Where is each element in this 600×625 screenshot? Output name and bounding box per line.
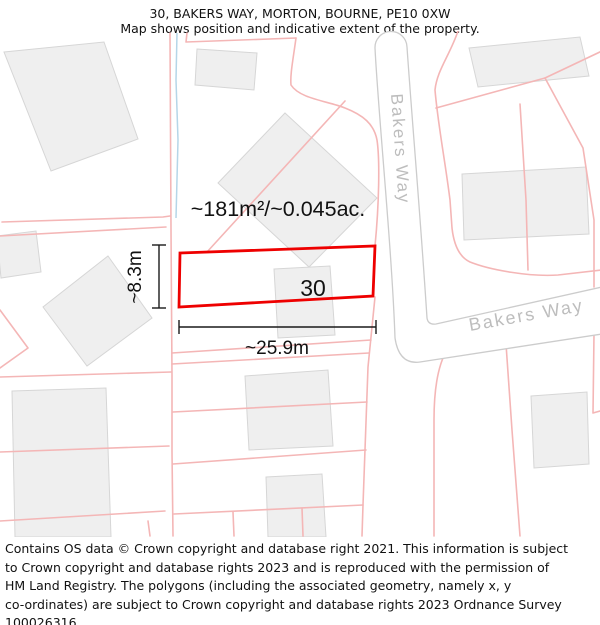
stream-line	[176, 33, 178, 218]
copyright-line: co-ordinates) are subject to Crown copyr…	[5, 596, 599, 615]
width-dimension-label: ~25.9m	[245, 338, 309, 359]
building	[531, 392, 589, 468]
building	[0, 231, 41, 278]
property-map-page: 30, BAKERS WAY, MORTON, BOURNE, PE10 0XW…	[0, 0, 600, 625]
copyright-line: 100026316.	[5, 614, 599, 625]
area-label: ~181m²/~0.045ac.	[191, 197, 366, 221]
building	[469, 37, 589, 87]
building	[195, 49, 257, 90]
copyright-notice: Contains OS data © Crown copyright and d…	[5, 540, 599, 625]
building	[266, 474, 326, 537]
depth-dimension-label: ~8.3m	[125, 250, 146, 303]
plot-number-label: 30	[300, 275, 326, 301]
depth-dimension-line	[152, 245, 166, 308]
buildings	[0, 37, 589, 537]
copyright-line: HM Land Registry. The polygons (includin…	[5, 577, 599, 596]
map-canvas: Bakers Way Bakers Way ~181m²/~0.045ac. 3…	[0, 0, 600, 625]
copyright-line: Contains OS data © Crown copyright and d…	[5, 540, 599, 559]
building	[245, 370, 333, 450]
building	[218, 113, 377, 267]
copyright-line: to Crown copyright and database rights 2…	[5, 559, 599, 578]
building	[4, 42, 138, 171]
